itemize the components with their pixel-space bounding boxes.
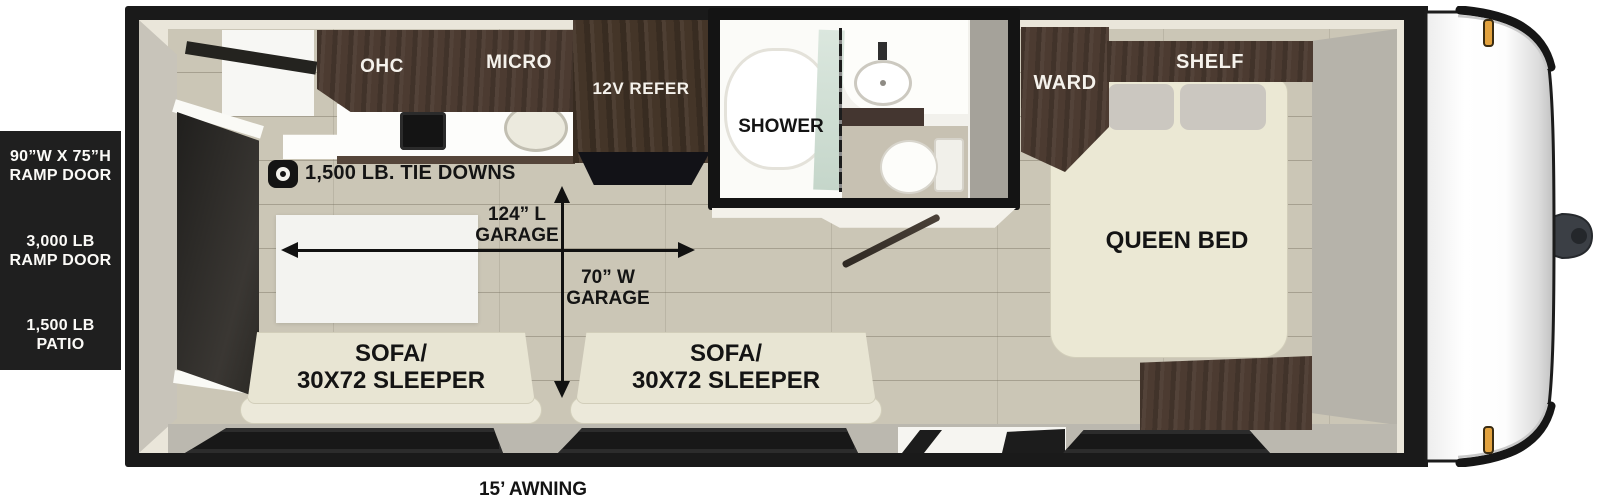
garage-width-label: 70” W GARAGE <box>552 267 664 309</box>
glass-door-hinge <box>839 28 842 192</box>
shower-label: SHOWER <box>724 117 838 138</box>
spec-line: RAMP DOOR <box>0 167 121 186</box>
front-cap <box>1396 6 1600 467</box>
refer-label: 12V REFER <box>573 80 709 99</box>
front-interior-wall <box>1312 29 1397 425</box>
micro-label: MICRO <box>484 53 554 74</box>
specs-panel: 90”W X 75”H RAMP DOOR 3,000 LB RAMP DOOR… <box>0 131 121 370</box>
rear-wall <box>139 20 177 453</box>
spec-line: 1,500 LB <box>0 317 121 336</box>
bathroom-faucet <box>878 42 887 60</box>
tie-down-label: 1,500 LB. TIE DOWNS <box>305 162 516 184</box>
front-wall-border <box>1404 6 1428 467</box>
ward-label: WARD <box>1021 72 1109 94</box>
sink-drain <box>880 80 886 86</box>
arrow-head-right <box>678 242 695 258</box>
spec-line: 90”W X 75”H <box>0 148 121 167</box>
spec-line: RAMP DOOR <box>0 252 121 271</box>
spec-line: 3,000 LB <box>0 233 121 252</box>
spec-line: PATIO <box>0 336 121 355</box>
shelf-label: SHELF <box>1107 51 1313 73</box>
toilet <box>880 140 938 194</box>
sofa-2-label: SOFA/ 30X72 SLEEPER <box>576 340 876 394</box>
cap-body <box>1426 12 1554 461</box>
marker-light-top <box>1484 20 1493 46</box>
sofa-label-line: 30X72 SLEEPER <box>247 367 535 394</box>
sofa-label-line: 30X72 SLEEPER <box>576 367 876 394</box>
awning-label: 15’ AWNING <box>453 480 613 501</box>
toilet-tank <box>934 138 964 192</box>
vanity-front <box>842 108 924 126</box>
bed-foot-cabinet <box>1140 356 1312 430</box>
ohc-label: OHC <box>352 57 412 78</box>
hitch-coupler <box>1571 228 1587 244</box>
bathroom <box>720 20 1008 198</box>
dim-line: GARAGE <box>552 288 664 309</box>
stove <box>400 112 446 150</box>
sofa-label-line: SOFA/ <box>576 340 876 367</box>
spec-ramp-door-size: 90”W X 75”H RAMP DOOR <box>0 148 121 186</box>
pillow <box>1180 84 1266 130</box>
sofa-1-label: SOFA/ 30X72 SLEEPER <box>247 340 535 394</box>
arrow-head-left <box>281 242 298 258</box>
spec-patio-weight: 1,500 LB PATIO <box>0 317 121 355</box>
window-3 <box>1063 430 1270 453</box>
tie-down-icon <box>268 160 298 188</box>
tie-down-ring <box>276 167 290 181</box>
spec-ramp-door-weight: 3,000 LB RAMP DOOR <box>0 233 121 271</box>
garage-length-arrow <box>297 249 679 252</box>
entry-door-panel <box>1002 429 1065 453</box>
dim-line: GARAGE <box>461 225 573 246</box>
sofa-label-line: SOFA/ <box>247 340 535 367</box>
pillow <box>1108 84 1174 130</box>
bathroom-wall <box>970 20 1008 198</box>
arrow-head-down <box>554 381 570 398</box>
garage-length-label: 124” L GARAGE <box>461 204 573 246</box>
floorplan-canvas: 90”W X 75”H RAMP DOOR 3,000 LB RAMP DOOR… <box>0 0 1600 503</box>
window-1 <box>185 428 503 453</box>
marker-light-bottom <box>1484 427 1493 453</box>
garage-mat <box>276 215 478 323</box>
arrow-head-up <box>554 186 570 203</box>
dim-line: 124” L <box>461 204 573 225</box>
bed-label: QUEEN BED <box>1092 228 1262 254</box>
refrigerator-front <box>578 152 710 185</box>
rear-corner-cabinet <box>222 30 314 116</box>
window-2 <box>558 428 858 453</box>
dim-line: 70” W <box>552 267 664 288</box>
